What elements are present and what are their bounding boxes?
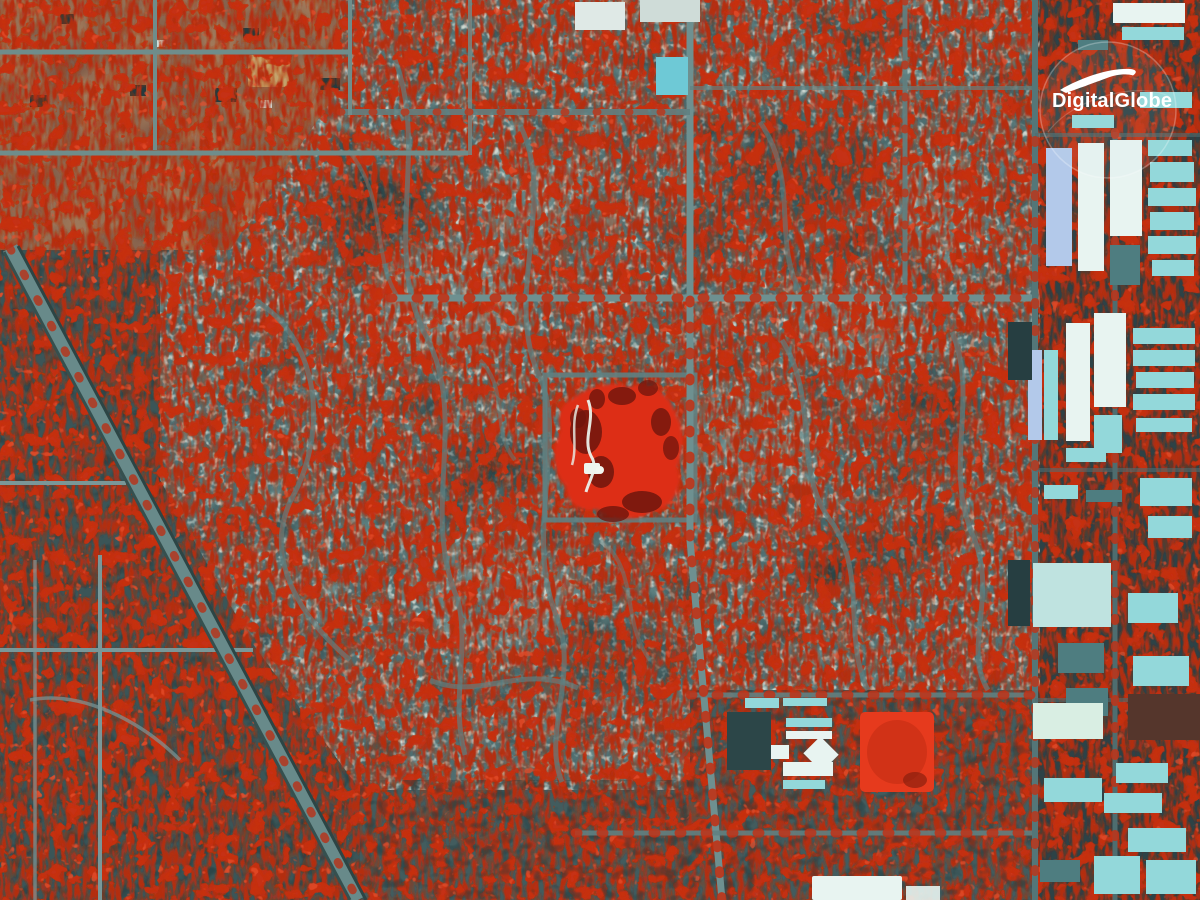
- rural-texture-shape: [215, 88, 237, 102]
- central-park-shape: [638, 380, 658, 396]
- industrial-buildings-shape: [1104, 793, 1162, 813]
- industrial-buildings-shape: [1128, 694, 1200, 740]
- industrial-buildings-shape: [1133, 656, 1189, 686]
- school-campus-shape: [771, 745, 789, 759]
- industrial-buildings-shape: [1136, 418, 1192, 432]
- rural-texture-shape: [60, 14, 74, 24]
- rural-texture-shape: [260, 100, 272, 108]
- central-park-shape: [597, 506, 629, 522]
- industrial-buildings-shape: [1008, 322, 1032, 380]
- school-campus-shape: [786, 731, 832, 739]
- industrial-buildings-shape: [1152, 260, 1194, 276]
- school-campus-shape: [783, 762, 833, 776]
- burn-texture-shape: [655, 203, 745, 267]
- burn-texture-shape: [715, 115, 885, 225]
- industrial-buildings-shape: [1113, 3, 1185, 23]
- burn-texture-shape: [420, 435, 540, 505]
- industrial-buildings-shape: [1150, 162, 1194, 182]
- industrial-buildings-shape: [1058, 643, 1104, 673]
- rural-texture-shape: [248, 55, 290, 87]
- rural-texture-shape: [130, 85, 146, 96]
- industrial-buildings-shape: [1128, 593, 1178, 623]
- vegetation-red-shape: [150, 255, 300, 303]
- industrial-buildings-shape: [1150, 212, 1194, 230]
- school-campus-shape: [745, 698, 779, 708]
- commercial-top-shape: [656, 57, 688, 95]
- industrial-buildings-shape: [1086, 490, 1122, 502]
- industrial-buildings-shape: [1044, 350, 1058, 440]
- industrial-buildings-shape: [1033, 563, 1111, 627]
- bottom-buildings-shape: [812, 876, 902, 900]
- industrial-buildings-shape: [1110, 245, 1140, 285]
- industrial-buildings-shape: [1044, 778, 1102, 802]
- sports-field: [860, 712, 934, 792]
- industrial-buildings-shape: [1133, 328, 1195, 344]
- commercial-top-shape: [640, 0, 700, 22]
- vegetation-red-shape: [330, 0, 505, 145]
- industrial-buildings-shape: [1033, 703, 1103, 739]
- central-park-shape: [622, 491, 662, 513]
- central-park: [554, 380, 682, 522]
- industrial-buildings-shape: [1148, 516, 1192, 538]
- digitalglobe-wordmark: DigitalGlobe: [1052, 90, 1172, 112]
- industrial-buildings-shape: [1066, 448, 1106, 462]
- industrial-buildings-shape: [1066, 323, 1090, 441]
- central-park-shape: [589, 389, 605, 409]
- digitalglobe-watermark: DigitalGlobe: [1040, 42, 1176, 178]
- central-park-shape: [596, 466, 604, 474]
- industrial-buildings-shape: [1122, 27, 1184, 40]
- industrial-buildings-shape: [1094, 415, 1122, 453]
- burn-texture-shape: [680, 390, 820, 480]
- industrial-buildings-shape: [1133, 394, 1195, 410]
- satellite-scene: DigitalGlobe: [0, 0, 1200, 900]
- burn-texture-shape: [480, 155, 620, 255]
- industrial-buildings-shape: [1116, 763, 1168, 783]
- school-campus-shape: [786, 718, 832, 727]
- satellite-image: DigitalGlobe: [0, 0, 1200, 900]
- burn-texture-shape: [790, 520, 930, 600]
- industrial-buildings-shape: [1140, 478, 1192, 506]
- industrial-buildings-shape: [1136, 372, 1194, 388]
- central-park-shape: [651, 408, 671, 436]
- industrial-buildings-shape: [1128, 828, 1186, 852]
- central-park-shape: [570, 408, 586, 428]
- school-campus-shape: [727, 712, 771, 770]
- burn-texture-shape: [880, 360, 980, 480]
- school-campus-shape: [783, 698, 827, 706]
- rural-texture-shape: [30, 95, 48, 107]
- industrial-buildings-shape: [1148, 236, 1196, 254]
- industrial-buildings-shape: [1040, 860, 1080, 882]
- sports-field-shape: [903, 772, 927, 788]
- industrial-buildings-shape: [1133, 350, 1195, 366]
- scene-layers: [0, 0, 1200, 900]
- burn-texture-shape: [420, 550, 580, 650]
- school-campus-shape: [783, 780, 825, 789]
- central-park-shape: [608, 387, 636, 405]
- industrial-buildings-shape: [1008, 560, 1030, 626]
- bottom-buildings-shape: [906, 886, 940, 900]
- industrial-buildings-shape: [1044, 485, 1078, 499]
- commercial-top-shape: [575, 2, 625, 30]
- central-park-shape: [663, 436, 679, 460]
- industrial-buildings-shape: [1094, 856, 1140, 894]
- rural-texture-shape: [243, 28, 259, 38]
- industrial-buildings-shape: [1146, 860, 1196, 894]
- industrial-buildings-shape: [1094, 313, 1126, 407]
- industrial-buildings-shape: [1148, 188, 1196, 206]
